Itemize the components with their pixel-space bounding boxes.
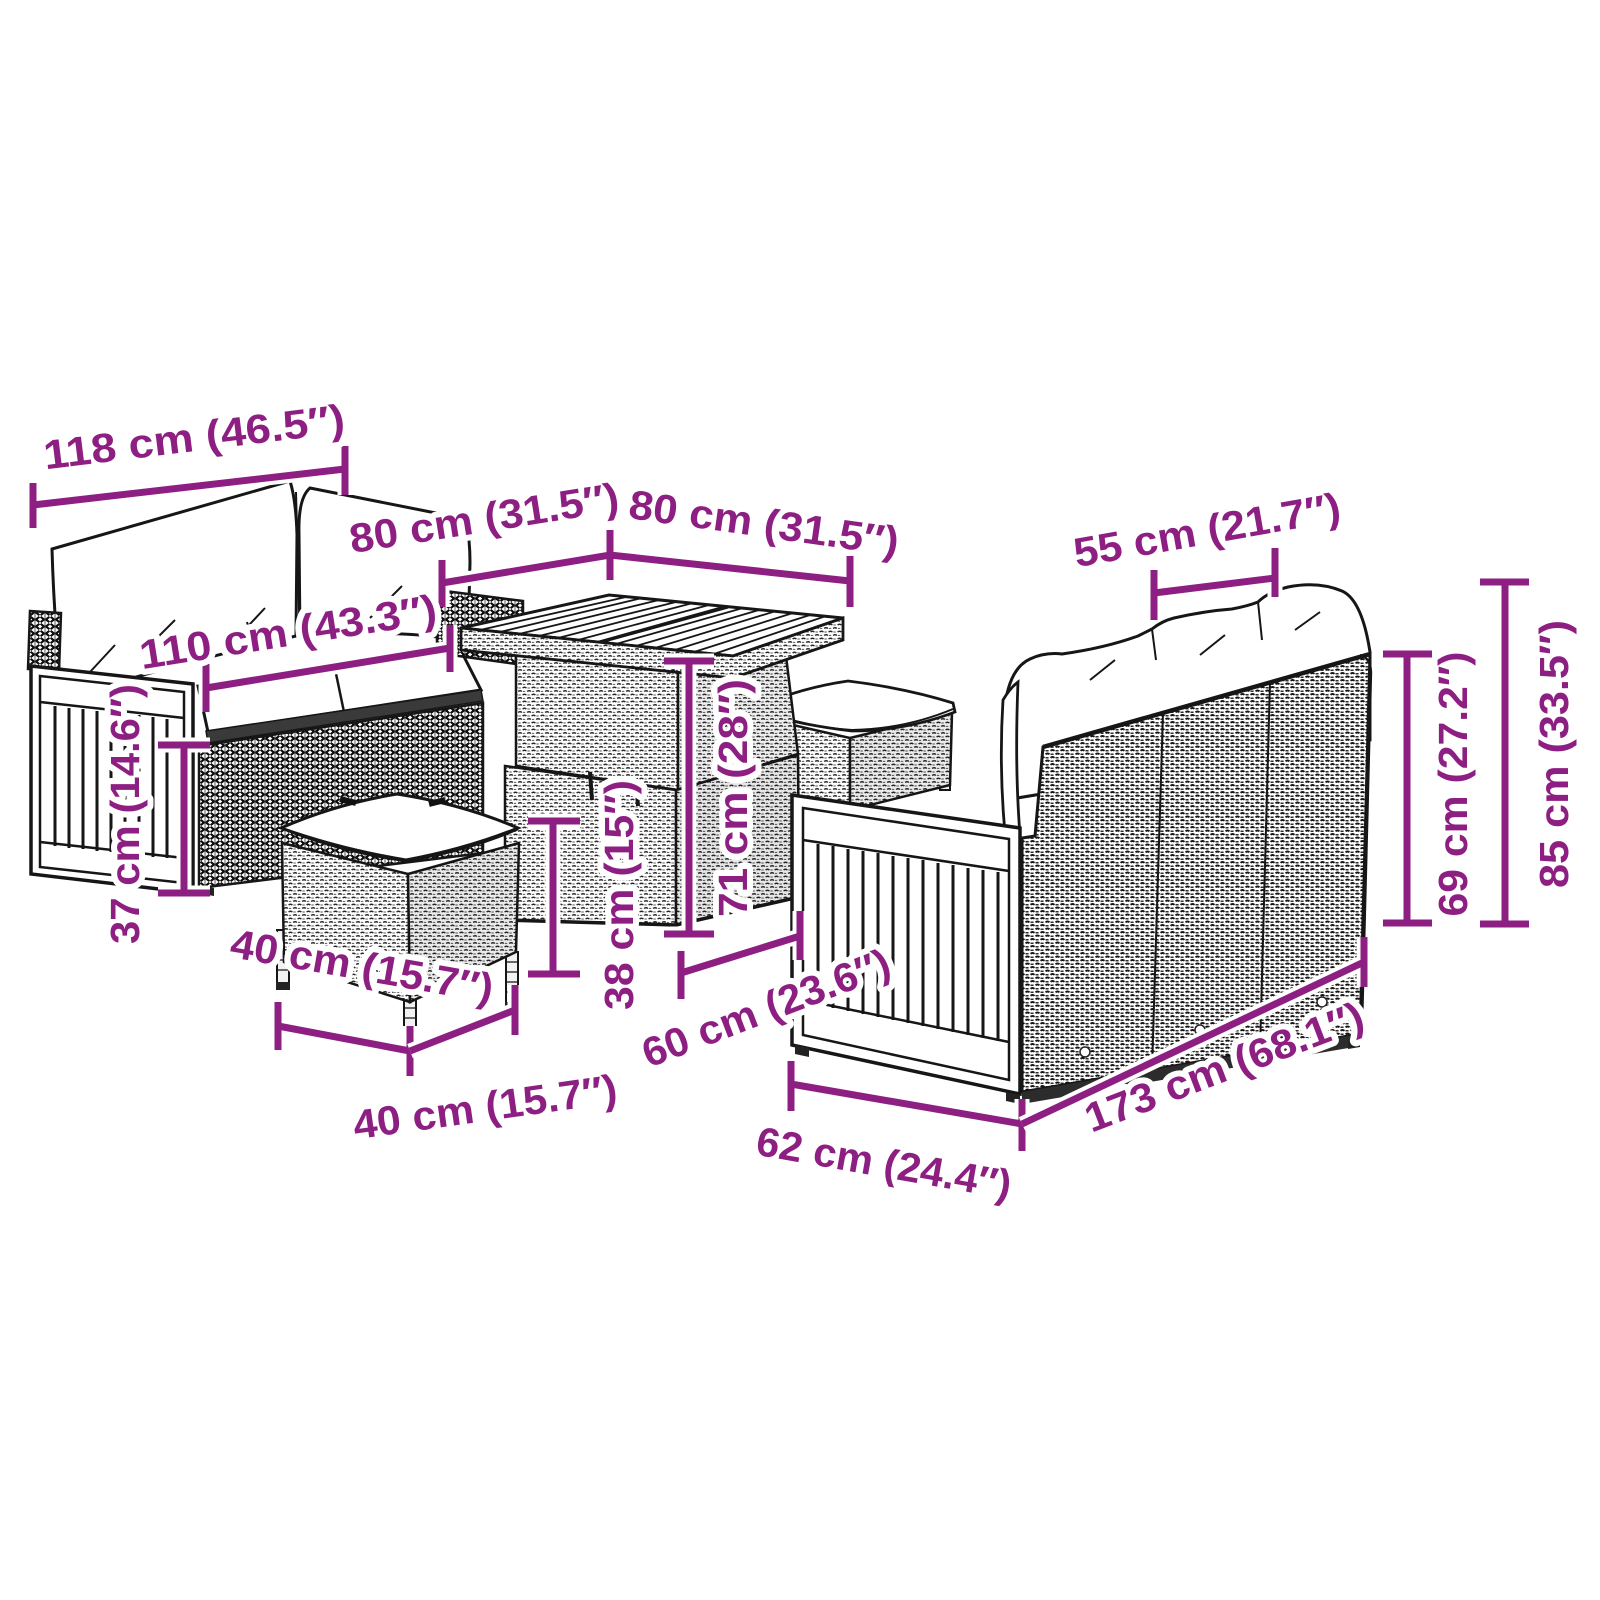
svg-text:38 cm (15″): 38 cm (15″) bbox=[596, 780, 642, 1010]
svg-text:71 cm (28″): 71 cm (28″) bbox=[710, 679, 756, 917]
svg-text:85 cm (33.5″): 85 cm (33.5″) bbox=[1531, 620, 1577, 888]
svg-text:69 cm (27.2″): 69 cm (27.2″) bbox=[1430, 652, 1476, 917]
svg-text:37 cm (14.6″): 37 cm (14.6″) bbox=[102, 684, 148, 944]
